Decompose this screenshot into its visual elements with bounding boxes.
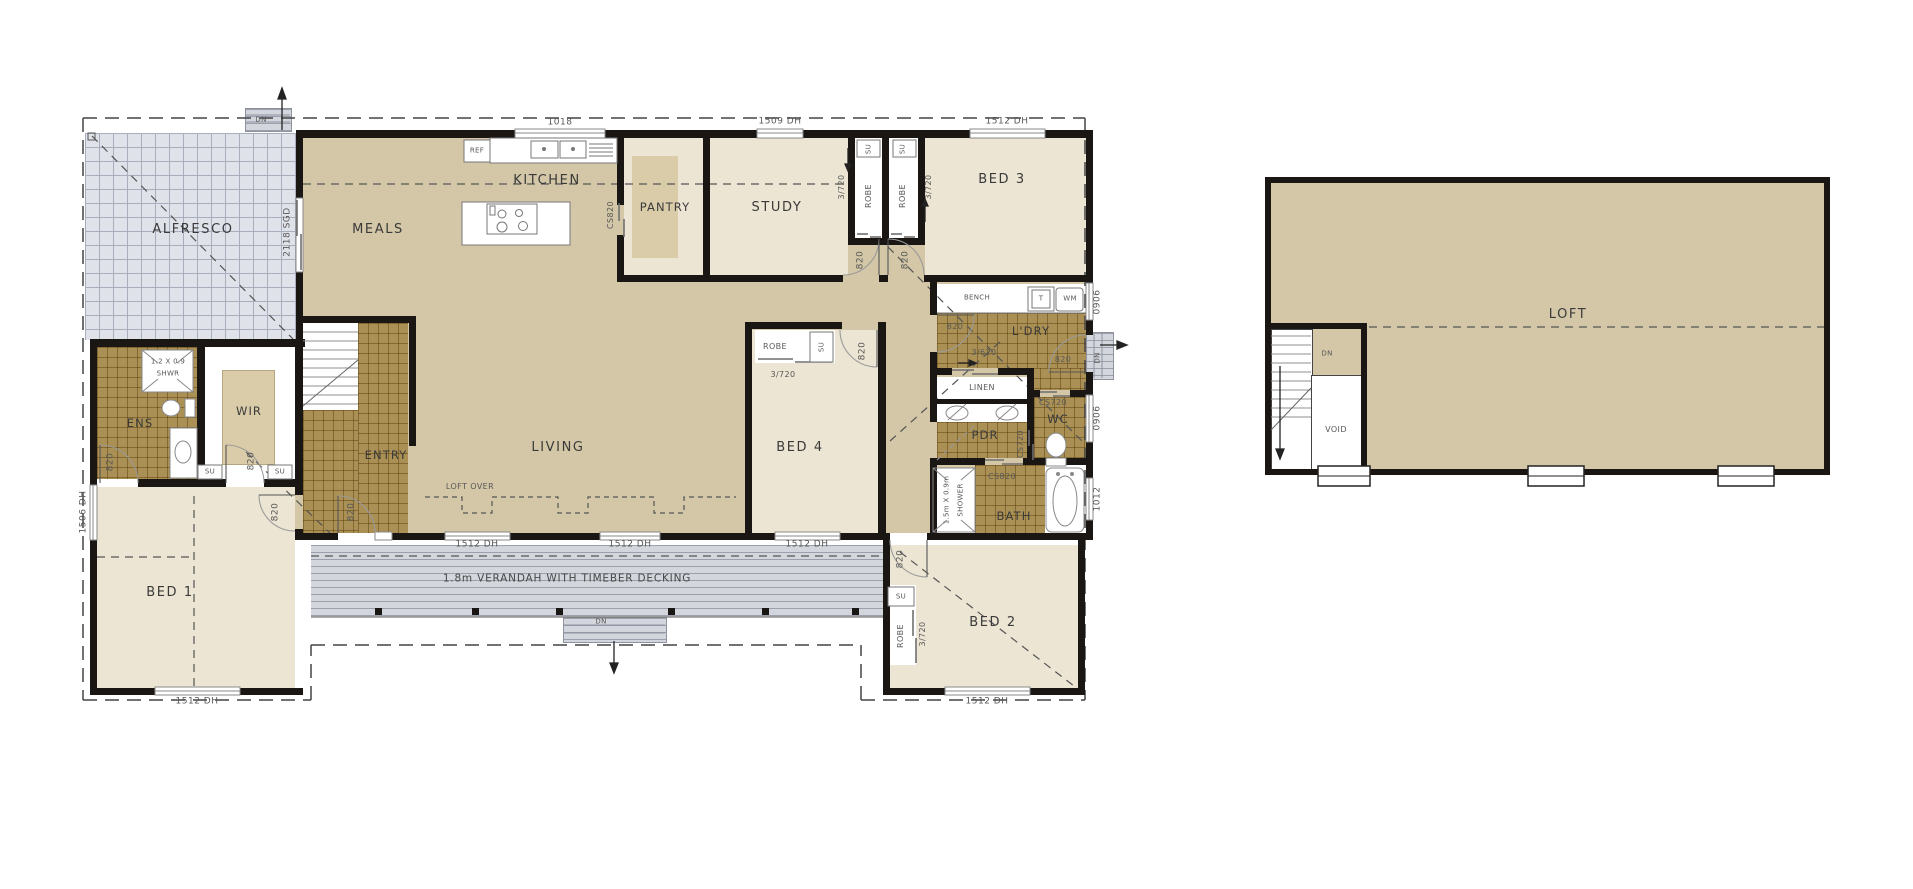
label-room-bed3: BED 3 (978, 173, 1026, 187)
label-window-1512dh-bed1: 1512 DH (176, 697, 219, 706)
label-door-ens: 820 (106, 453, 115, 472)
label-su-study-robe: SU (865, 144, 872, 154)
label-window-1012: 1012 (1093, 487, 1102, 512)
label-room-loft: LOFT (1549, 308, 1588, 322)
label-room-ldry: L'DRY (1012, 325, 1050, 337)
label-room-wir: WIR (236, 405, 262, 417)
label-robe-bed3: ROBE (899, 184, 907, 208)
label-door-wir: 820 (247, 452, 256, 471)
label-door-laundry-ext: 820 (1055, 356, 1071, 364)
label-robe-slider-bed4: 3/720 (770, 371, 795, 379)
label-room-kitchen: KITCHEN (513, 174, 581, 188)
label-fridge: REF (470, 147, 484, 154)
label-ens-shower-size: 1.2 X 0.9 (151, 358, 185, 365)
label-window-0906-laundry: 0906 (1093, 290, 1102, 315)
label-robe-bed4: ROBE (763, 343, 787, 351)
label-robe-study: ROBE (865, 184, 873, 208)
label-dn-verandah: DN (595, 618, 606, 625)
label-window-1509dh: 1509 DH (759, 117, 802, 126)
label-bath-shower-size: 1.5m X 0.9m (943, 476, 950, 524)
label-door-bed2: 820 (896, 550, 905, 569)
label-room-living: LIVING (531, 441, 584, 455)
label-trough: T (1039, 295, 1044, 302)
floor-plan-page: ALFRESCO MEALS KITCHEN PANTRY STUDY BED … (0, 0, 1913, 889)
label-bench: BENCH (964, 294, 990, 301)
label-window-1512dh-living2: 1512 DH (609, 540, 652, 549)
label-room-alfresco: ALFRESCO (152, 223, 233, 237)
label-window-1512dh-bed2: 1512 DH (966, 697, 1009, 706)
plan-linework (0, 0, 1913, 889)
label-room-bed4: BED 4 (776, 441, 824, 455)
label-room-entry: ENTRY (365, 449, 408, 461)
label-linen-slider: 3/620 (971, 349, 996, 357)
label-dn-laundry: DN (1094, 352, 1101, 363)
label-cs720-pdr: CS720 (1017, 430, 1025, 458)
label-room-ens: ENS (127, 417, 153, 429)
label-window-1018: 1018 (548, 118, 573, 127)
label-verandah-note: 1.8m VERANDAH WITH TIMEBER DECKING (443, 573, 691, 584)
label-room-linen: LINEN (969, 384, 995, 392)
label-loft-over: LOFT OVER (446, 483, 494, 491)
label-su-bed3-robe: SU (899, 144, 906, 154)
label-room-meals: MEALS (352, 223, 404, 237)
label-room-bed1: BED 1 (146, 586, 194, 600)
label-su-wir-left: SU (205, 468, 215, 475)
loft-over-dashed-outline (425, 497, 736, 513)
label-door-bed1: 820 (271, 503, 280, 522)
label-room-pantry: PANTRY (640, 201, 691, 213)
stairs-treads (303, 332, 1311, 430)
kitchen-fixtures (462, 138, 617, 245)
label-cs820-pantry: CS820 (607, 201, 615, 229)
label-cs720-wc: CS720 (1039, 399, 1067, 407)
label-ens-shower: SHWR (157, 370, 180, 377)
label-room-study: STUDY (752, 201, 803, 215)
label-su-bed2-robe: SU (896, 593, 906, 600)
label-su-bed4-robe: SU (818, 342, 825, 352)
label-su-wir-right: SU (275, 468, 285, 475)
label-window-0906-wc: 0906 (1093, 406, 1102, 431)
label-sliding-glass-door: 2118 SGD (283, 207, 292, 256)
label-dn-alfresco: DN (255, 116, 266, 123)
label-dn-loft: DN (1321, 350, 1332, 357)
direction-arrows (278, 88, 1284, 673)
label-washing-machine: WM (1063, 295, 1077, 302)
label-window-1512dh-bed4: 1512 DH (786, 540, 829, 549)
label-door-bed3: 820 (901, 251, 910, 270)
label-window-1512dh-bed3: 1512 DH (986, 117, 1029, 126)
label-door-laundry-hall: 820 (947, 323, 963, 331)
label-door-entry: 820 (347, 503, 356, 522)
label-robe-slider-bed3: 3/720 (925, 174, 933, 199)
label-robe-slider-study: 3/720 (838, 174, 846, 199)
label-bath-shower: SHOWER (957, 483, 964, 516)
label-door-bed4: 820 (858, 342, 867, 361)
label-window-1512dh-living1: 1512 DH (456, 540, 499, 549)
label-door-study: 820 (856, 251, 865, 270)
label-room-void: VOID (1325, 426, 1347, 434)
label-room-wc: WC (1047, 413, 1069, 425)
label-window-1506dh: 1506 DH (79, 491, 88, 534)
label-cs820-bath: CS820 (988, 473, 1016, 481)
label-room-bath: BATH (997, 510, 1032, 522)
label-room-bed2: BED 2 (969, 616, 1017, 630)
label-robe-slider-bed2: 3/720 (919, 621, 927, 646)
label-room-pdr: PDR (971, 429, 998, 441)
label-robe-bed2: ROBE (897, 624, 905, 648)
